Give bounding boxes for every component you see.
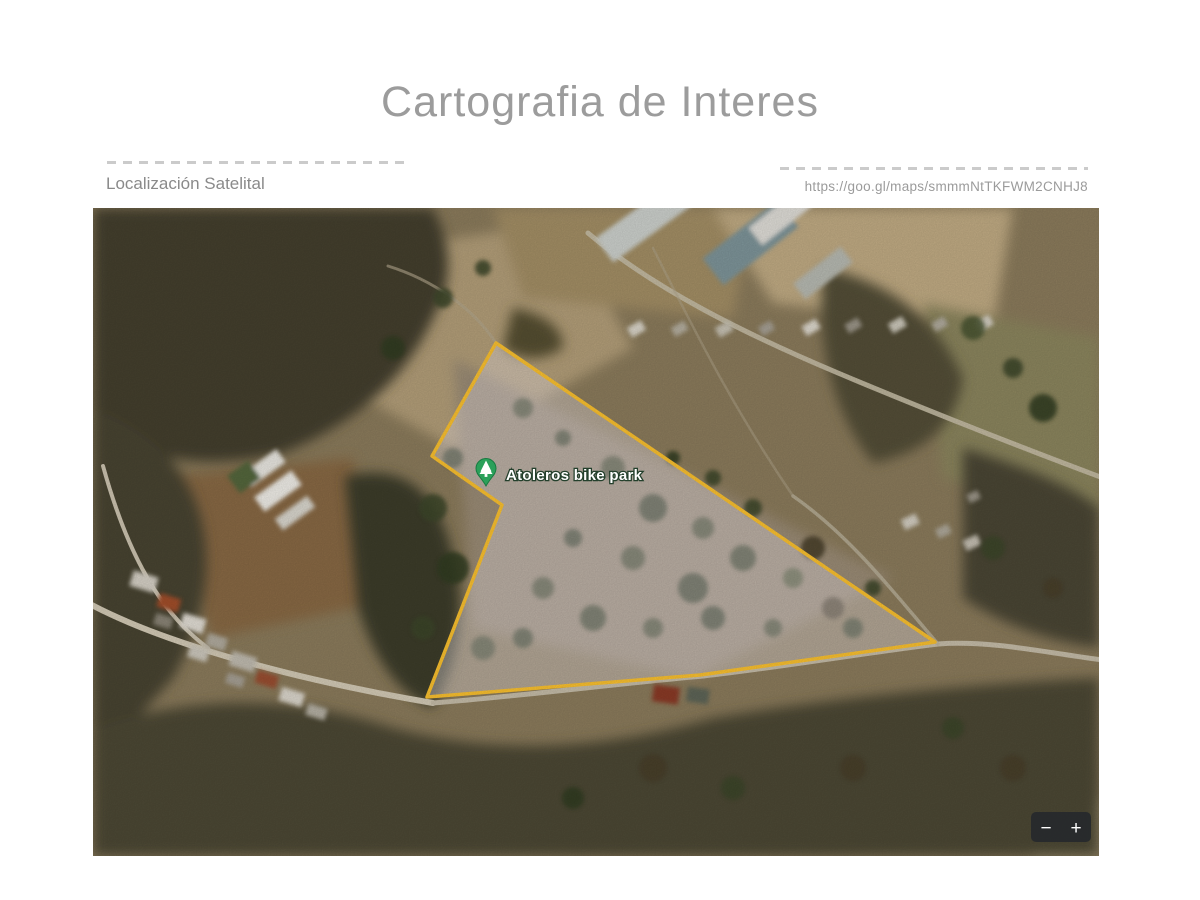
zoom-control: − + (1031, 812, 1091, 842)
right-divider (780, 167, 1088, 170)
minus-icon: − (1040, 818, 1051, 839)
satellite-map[interactable]: Atoleros bike park − + (93, 208, 1099, 856)
zoom-in-button[interactable]: + (1070, 818, 1081, 839)
plus-icon: + (1070, 818, 1081, 839)
left-divider (107, 161, 408, 164)
section-caption: Localización Satelital (106, 174, 265, 194)
image-grain (93, 208, 1099, 856)
map-url-caption: https://goo.gl/maps/smmmNtTKFWM2CNHJ8 (640, 179, 1088, 194)
zoom-out-button[interactable]: − (1040, 818, 1051, 839)
poi-label: Atoleros bike park (506, 467, 643, 484)
page-title: Cartografia de Interes (0, 78, 1200, 127)
